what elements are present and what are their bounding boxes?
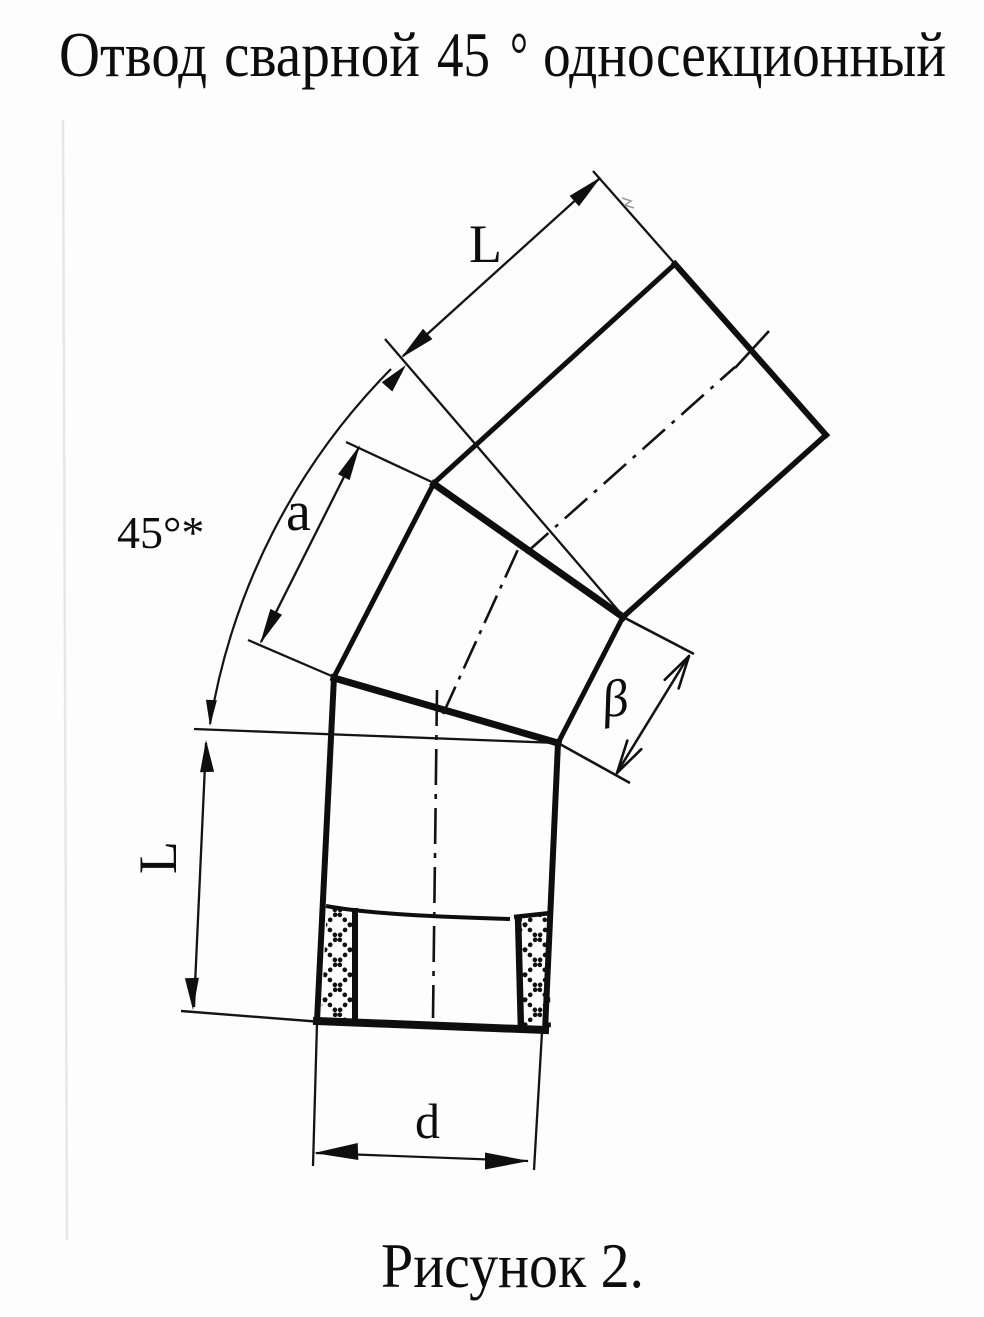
- svg-text:°: °: [510, 19, 528, 90]
- svg-text:L: L: [128, 841, 188, 874]
- svg-text:сварной: сварной: [224, 19, 420, 90]
- svg-text:d: d: [415, 1093, 440, 1149]
- svg-text:45°*: 45°*: [117, 507, 204, 558]
- svg-text:45: 45: [437, 19, 490, 90]
- svg-text:Рисунок 2.: Рисунок 2.: [381, 1230, 644, 1301]
- svg-text:a: a: [286, 481, 311, 543]
- svg-text:L: L: [469, 214, 502, 274]
- svg-text:односекционный: односекционный: [543, 19, 946, 90]
- svg-text:Отвод: Отвод: [59, 19, 207, 90]
